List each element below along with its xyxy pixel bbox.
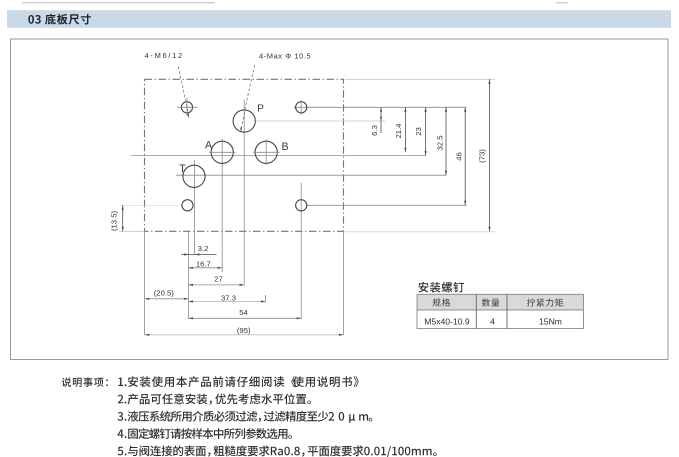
svg-text:16.7: 16.7 — [196, 260, 211, 269]
svg-text:B: B — [281, 141, 288, 153]
svg-text:M5x40-10.9: M5x40-10.9 — [424, 316, 470, 326]
svg-text:37.3: 37.3 — [221, 293, 236, 302]
svg-text:6.3: 6.3 — [370, 125, 379, 136]
svg-text:T: T — [179, 163, 186, 175]
svg-text:(13.5): (13.5) — [109, 211, 118, 232]
svg-text:15Nm: 15Nm — [539, 316, 562, 326]
svg-text:54: 54 — [239, 308, 248, 317]
svg-text:4-Max Φ 10.5: 4-Max Φ 10.5 — [259, 51, 311, 60]
svg-text:27: 27 — [214, 275, 223, 284]
svg-text:23: 23 — [414, 127, 423, 136]
svg-text:(20.5): (20.5) — [154, 288, 175, 297]
svg-text:4-M6/12: 4-M6/12 — [145, 51, 184, 60]
svg-text:21.4: 21.4 — [394, 123, 403, 139]
svg-text:46: 46 — [454, 152, 463, 161]
svg-text:A: A — [205, 140, 213, 152]
svg-text:4: 4 — [490, 316, 495, 326]
svg-text:32.5: 32.5 — [435, 136, 444, 151]
svg-text:P: P — [257, 104, 264, 115]
svg-text:(73): (73) — [478, 149, 487, 163]
svg-text:3.2: 3.2 — [198, 244, 209, 253]
svg-text:(95): (95) — [237, 326, 251, 335]
